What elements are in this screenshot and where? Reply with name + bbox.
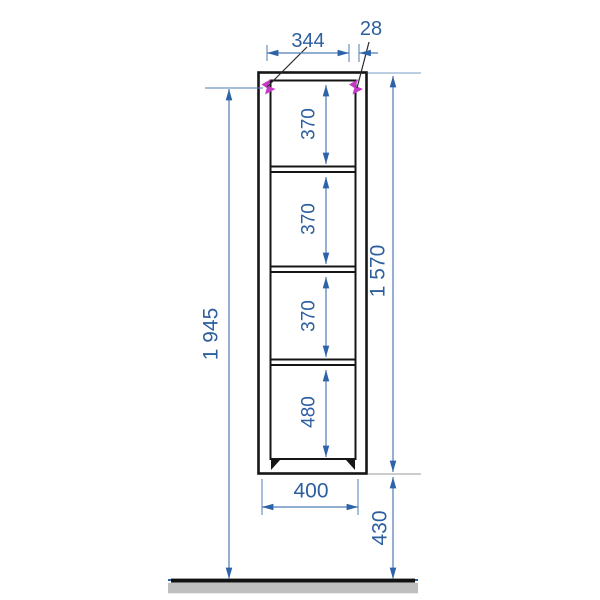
dim-top-width-label: 344	[291, 31, 324, 51]
dim-shelf-3-label: 370	[300, 300, 319, 332]
dim-side-height-label: 1 570	[368, 245, 389, 298]
shelf-boards	[271, 167, 356, 366]
dim-floor-clearance-label: 430	[370, 510, 391, 545]
dim-total-height-label: 1 945	[201, 308, 222, 361]
bottom-corner-fittings	[271, 460, 355, 470]
dim-shelf-4-label: 480	[300, 396, 319, 428]
dim-shelf-2-label: 370	[300, 203, 319, 235]
floor-line	[168, 579, 418, 594]
dim-hanger-inset-label: 28	[360, 19, 382, 39]
dim-shelf-1-label: 370	[300, 108, 319, 140]
technical-drawing-canvas: 344 28 1 945 1 570 370 370 370 480 400 4…	[0, 0, 600, 600]
dim-base-width-label: 400	[293, 481, 328, 502]
